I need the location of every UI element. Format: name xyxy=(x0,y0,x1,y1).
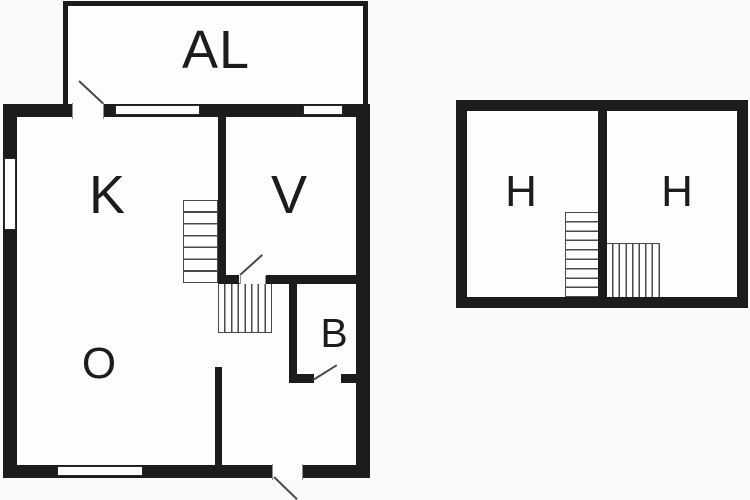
interior-wall-b-left xyxy=(289,284,297,383)
interior-wall-v-bottom-left xyxy=(218,275,239,284)
upper-stairs-right-flight xyxy=(607,243,660,297)
upper-wall-right xyxy=(737,100,748,308)
room-label-v: V xyxy=(271,168,307,222)
stairs-lower-flight xyxy=(218,283,272,333)
interior-wall-v-bottom-right xyxy=(266,275,356,284)
interior-wall-b-bottom-left xyxy=(289,374,314,383)
upper-wall-h-h-divider xyxy=(598,111,607,297)
room-label-al: AL xyxy=(182,23,250,77)
upper-stairs-left-flight xyxy=(565,212,598,297)
al-wall-left xyxy=(63,1,68,112)
window-bottom xyxy=(57,466,143,476)
room-label-h-left: H xyxy=(505,170,537,214)
interior-wall-k-v-divider xyxy=(218,117,226,284)
room-label-k: K xyxy=(89,168,125,222)
v-door-leaf xyxy=(240,276,266,284)
room-label-h-right: H xyxy=(661,170,693,214)
interior-wall-b-bottom-right xyxy=(341,374,356,383)
window-left xyxy=(4,158,16,230)
window-top-2 xyxy=(303,105,343,115)
room-label-b: B xyxy=(320,313,347,354)
upper-wall-top xyxy=(456,100,748,111)
floor-plan-canvas: AL K V B O H H xyxy=(0,0,750,500)
room-label-o: O xyxy=(82,342,116,386)
al-wall-right xyxy=(363,1,368,112)
window-top-1 xyxy=(115,105,200,115)
al-wall-top xyxy=(63,1,368,6)
stairs-upper-flight xyxy=(183,200,218,283)
upper-wall-left xyxy=(456,100,467,308)
interior-wall-o-partition xyxy=(215,367,222,465)
exterior-wall-right xyxy=(356,104,370,478)
upper-wall-bottom xyxy=(456,297,748,308)
al-door-opening xyxy=(72,103,104,119)
